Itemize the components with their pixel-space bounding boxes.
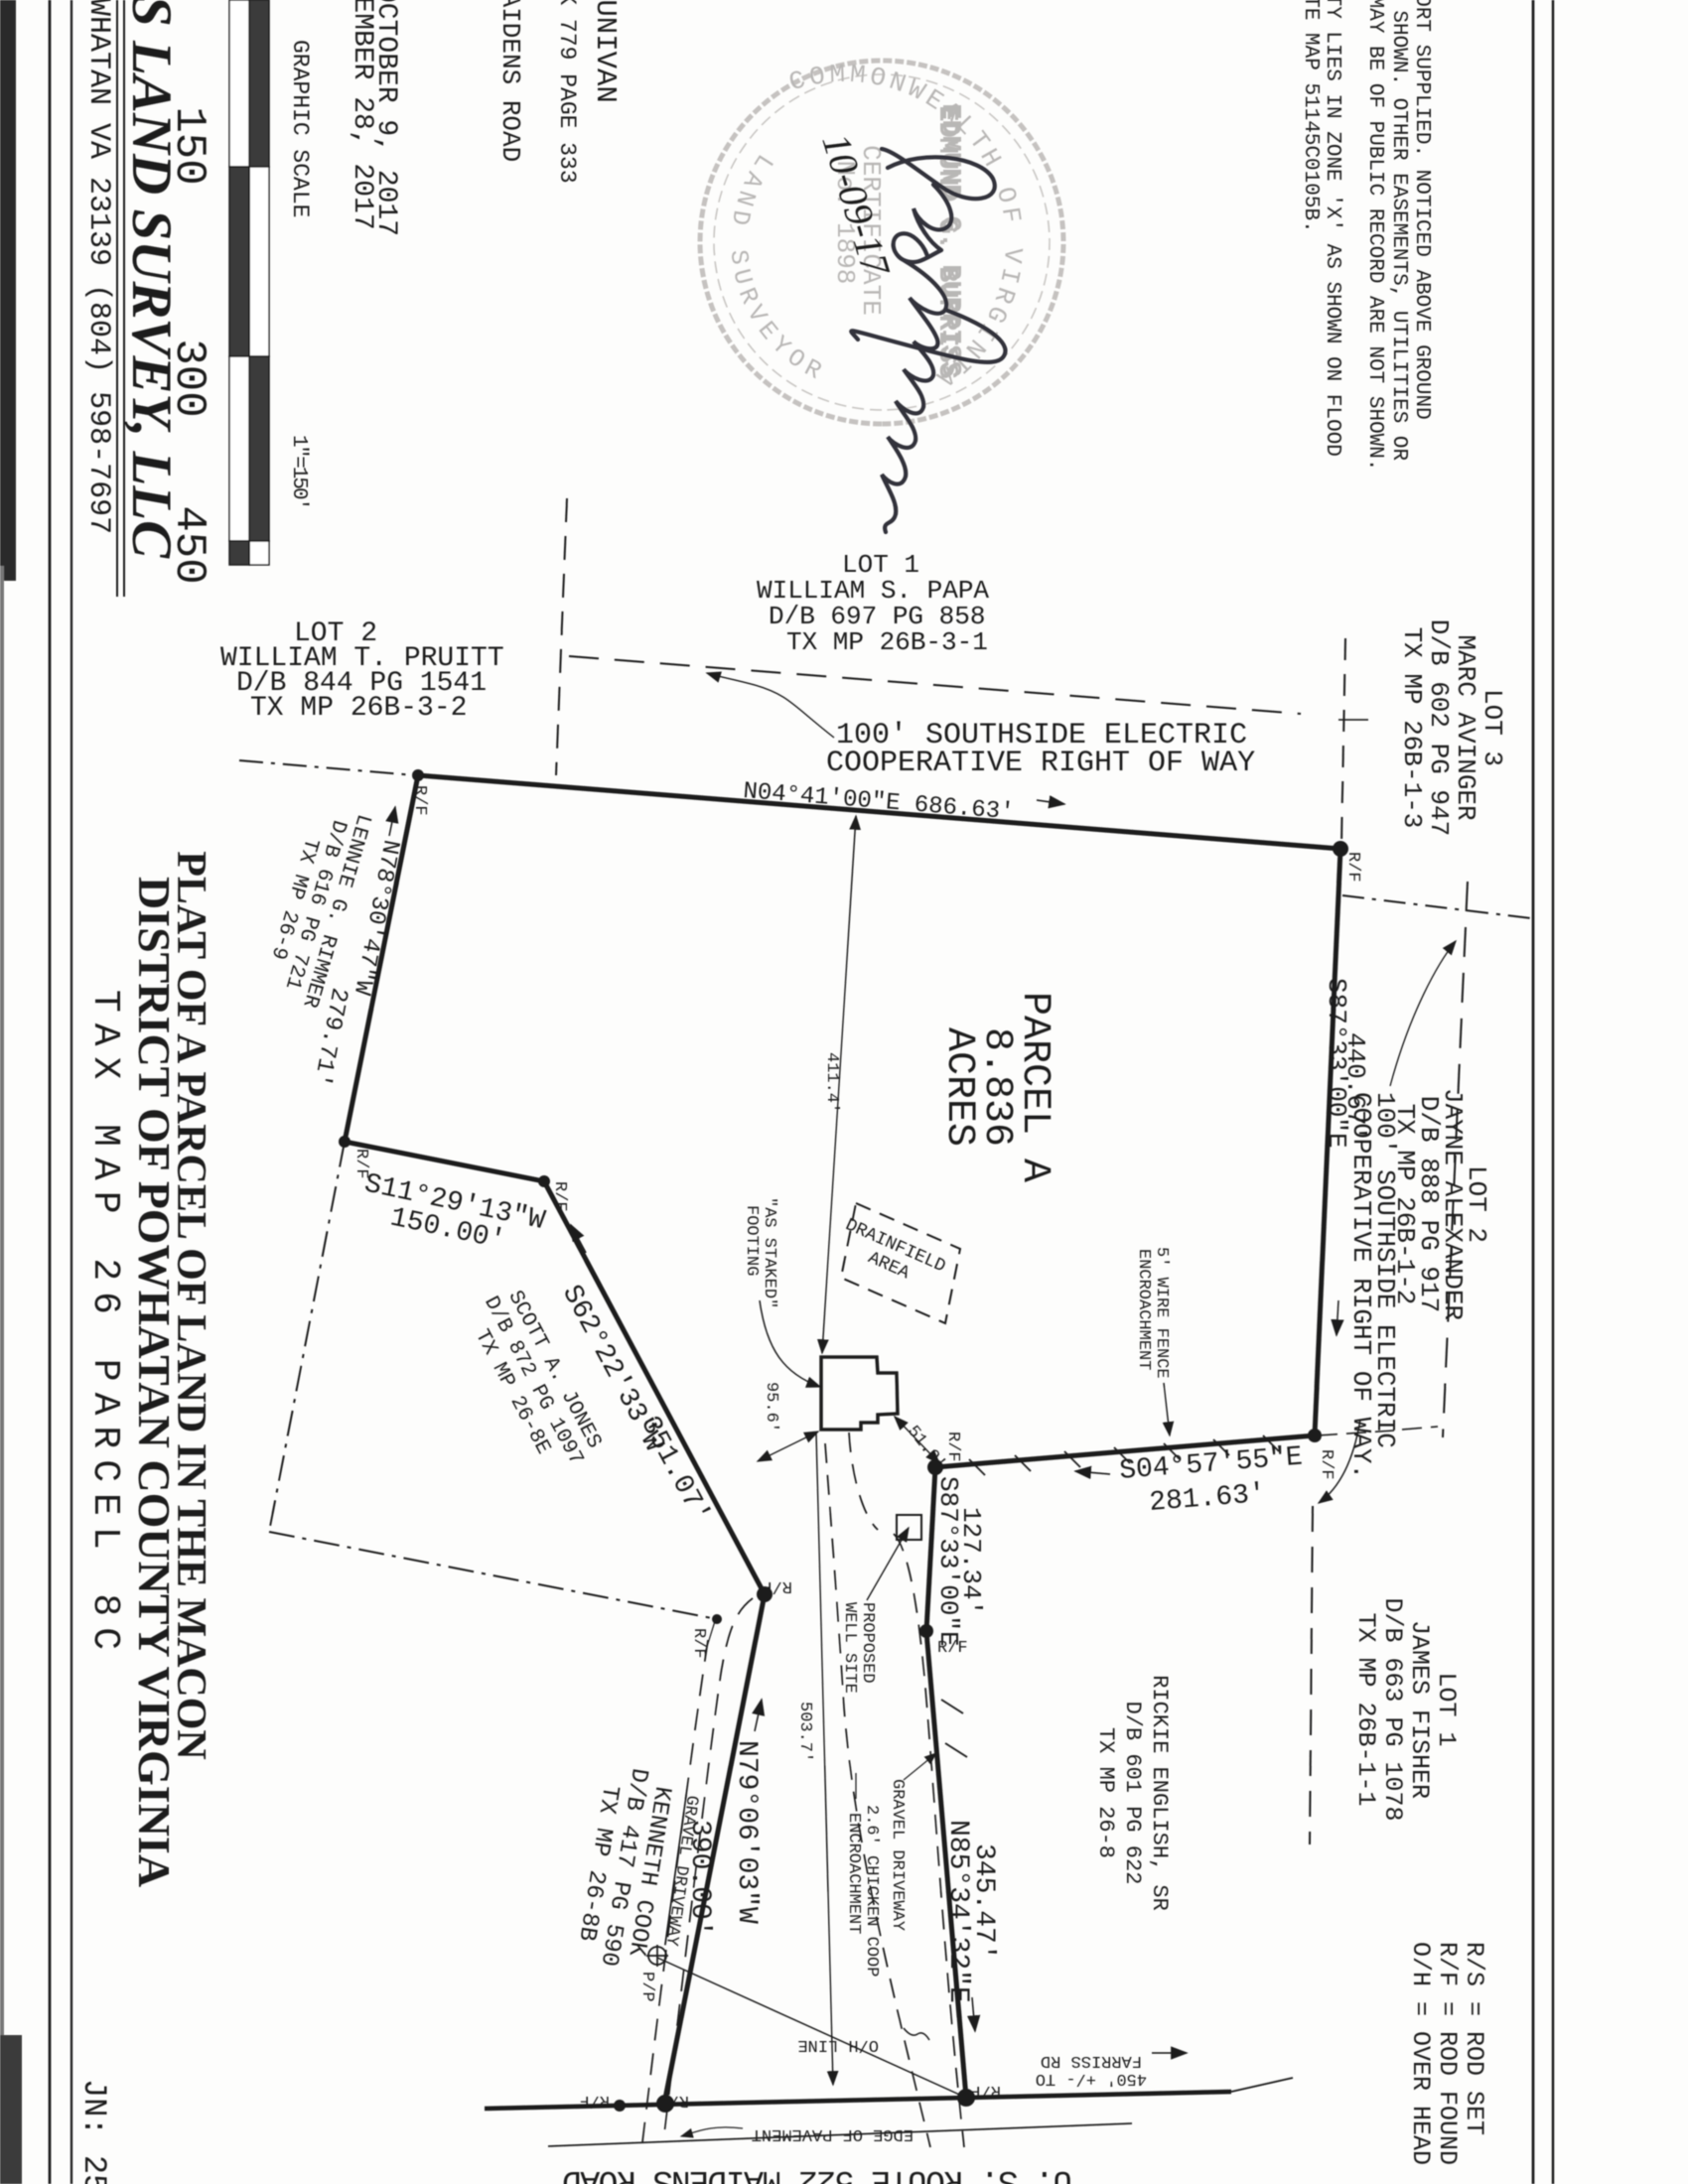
- svg-text:R/F: R/F: [579, 2091, 610, 2110]
- svg-text:ACRES: ACRES: [936, 1027, 981, 1147]
- svg-text:R/F: R/F: [762, 1576, 792, 1595]
- svg-text:2.6' CHICKEN COOP: 2.6' CHICKEN COOP: [862, 1805, 881, 1977]
- svg-text:WHICH MAY BE OF PUBLIC RECORD: WHICH MAY BE OF PUBLIC RECORD ARE NOT SH…: [1363, 0, 1386, 472]
- svg-text:R/F: R/F: [352, 1149, 370, 1179]
- svg-text:COOPERATIVE RIGHT OF WAY.: COOPERATIVE RIGHT OF WAY.: [1346, 1092, 1376, 1479]
- svg-text:LOT 1: LOT 1: [1432, 1672, 1461, 1746]
- svg-text:LOT 3: LOT 3: [1477, 689, 1507, 766]
- svg-text:TX MP 26B-3-1: TX MP 26B-3-1: [786, 627, 988, 657]
- svg-text:R/S: R/S: [658, 2091, 689, 2110]
- svg-text:PROPOSED: PROPOSED: [858, 1602, 877, 1684]
- svg-text:DUNIVAN: DUNIVAN: [589, 0, 622, 103]
- svg-text:O/H LINE: O/H LINE: [797, 2035, 879, 2054]
- svg-text:JN: 2553: JN: 2553: [75, 2079, 112, 2184]
- svg-text:R/F: R/F: [1343, 852, 1362, 883]
- svg-text:INSURANCE RATE MAP 51145C0105: INSURANCE RATE MAP 51145C0105B.: [1299, 0, 1322, 233]
- svg-text:5' WIRE FENCE: 5' WIRE FENCE: [1152, 1247, 1171, 1379]
- svg-text:FARRISS RD: FARRISS RD: [1041, 2051, 1142, 2070]
- svg-text:GRAPHIC SCALE: GRAPHIC SCALE: [287, 40, 313, 217]
- svg-text:R/F: R/F: [550, 1181, 569, 1212]
- svg-text:411.4': 411.4': [822, 1052, 841, 1113]
- svg-text:RICKIE ENGLISH, SR: RICKIE ENGLISH, SR: [1147, 1675, 1172, 1911]
- svg-text:D/B 602 PG 947: D/B 602 PG 947: [1424, 619, 1454, 836]
- svg-text:R/S = ROD SET: R/S = ROD SET: [1460, 1942, 1488, 2135]
- svg-text:R/F: R/F: [410, 785, 429, 816]
- svg-text:P/P: P/P: [637, 1972, 656, 2002]
- svg-text:150: 150: [164, 106, 213, 185]
- svg-text:TX MP 26B-1-1: TX MP 26B-1-1: [1351, 1612, 1380, 1806]
- svg-text:R/F: R/F: [943, 1432, 962, 1462]
- svg-text:U. S. ROUTE 522 MAIDENS ROAD: U. S. ROUTE 522 MAIDENS ROAD: [563, 2162, 1072, 2184]
- svg-text:D/B 663 PG 1078: D/B 663 PG 1078: [1378, 1597, 1407, 1821]
- svg-text:D/B 601 PG 622: D/B 601 PG 622: [1120, 1702, 1145, 1885]
- svg-text:O/H = OVER HEAD: O/H = OVER HEAD: [1406, 1942, 1435, 2165]
- svg-text:NO TITLE REPORT SUPPLIED. NOT: NO TITLE REPORT SUPPLIED. NOTICED ABOVE …: [1410, 0, 1433, 420]
- svg-text:ENCROACHMENT: ENCROACHMENT: [1134, 1249, 1153, 1370]
- svg-text:POWHATAN VA 23139 (804) 598-76: POWHATAN VA 23139 (804) 598-7697: [81, 0, 115, 534]
- svg-text:S87°33'00"E: S87°33'00"E: [933, 1476, 963, 1647]
- svg-text:BURRISS LAND SURVEY, LLC: BURRISS LAND SURVEY, LLC: [120, 0, 183, 559]
- svg-text:300: 300: [164, 339, 213, 417]
- svg-text:N85°34'32"E: N85°34'32"E: [942, 1820, 973, 2003]
- svg-text:TX MP 26-8: TX MP 26-8: [1093, 1727, 1118, 1858]
- svg-text:COOPERATIVE RIGHT OF WAY: COOPERATIVE RIGHT OF WAY: [826, 747, 1255, 780]
- svg-text:JAMES FISHER: JAMES FISHER: [1405, 1620, 1434, 1799]
- svg-text:R/F: R/F: [689, 1628, 708, 1659]
- svg-text:95.6': 95.6': [762, 1382, 780, 1433]
- svg-text:NOVEMBER 28, 2017: NOVEMBER 28, 2017: [347, 0, 377, 230]
- svg-text:503.7': 503.7': [795, 1702, 814, 1762]
- svg-text:R/F: R/F: [970, 2081, 1001, 2100]
- svg-text:450' +/- TO: 450' +/- TO: [1036, 2069, 1147, 2088]
- svg-text:FOOTING: FOOTING: [742, 1205, 761, 1276]
- svg-text:THIS PROPERTY LIES IN ZONE 'X': THIS PROPERTY LIES IN ZONE 'X' AS SHOWN …: [1321, 0, 1343, 457]
- svg-text:BOOK 779 PAGE 333: BOOK 779 PAGE 333: [554, 0, 580, 184]
- svg-text:MARC AVINGER: MARC AVINGER: [1451, 634, 1480, 820]
- svg-text:MAIDENS ROAD: MAIDENS ROAD: [495, 0, 525, 162]
- svg-text:EDGE OF PAVEMENT: EDGE OF PAVEMENT: [752, 2124, 914, 2143]
- svg-text:ENCROACHMENT: ENCROACHMENT: [844, 1813, 863, 1934]
- svg-text:R/F = ROD FOUND: R/F = ROD FOUND: [1433, 1942, 1462, 2165]
- svg-text:EASEMENTS ARE SHOWN. OTHER EAS: EASEMENTS ARE SHOWN. OTHER EASEMENTS, UT…: [1387, 0, 1410, 462]
- svg-text:N79°06'03"W: N79°06'03"W: [731, 1740, 762, 1924]
- svg-text:R/F: R/F: [1317, 1449, 1336, 1480]
- svg-text:TX MP 26B-1-3: TX MP 26B-1-3: [1397, 627, 1427, 829]
- svg-text:1"=150': 1"=150': [287, 435, 310, 508]
- svg-text:"AS STAKED": "AS STAKED": [760, 1197, 778, 1308]
- svg-text:R/F: R/F: [937, 1639, 968, 1658]
- svg-text:GRAVEL DRIVEWAY: GRAVEL DRIVEWAY: [888, 1779, 907, 1931]
- svg-text:DISTRICT OF POWHATAN COUNTY VI: DISTRICT OF POWHATAN COUNTY VIRGINIA: [129, 877, 180, 1887]
- svg-text:TX MP 26B-3-2: TX MP 26B-3-2: [250, 693, 467, 724]
- svg-text:450: 450: [164, 505, 213, 584]
- svg-text:TAX MAP 26 PARCEL 8C: TAX MAP 26 PARCEL 8C: [83, 990, 126, 1661]
